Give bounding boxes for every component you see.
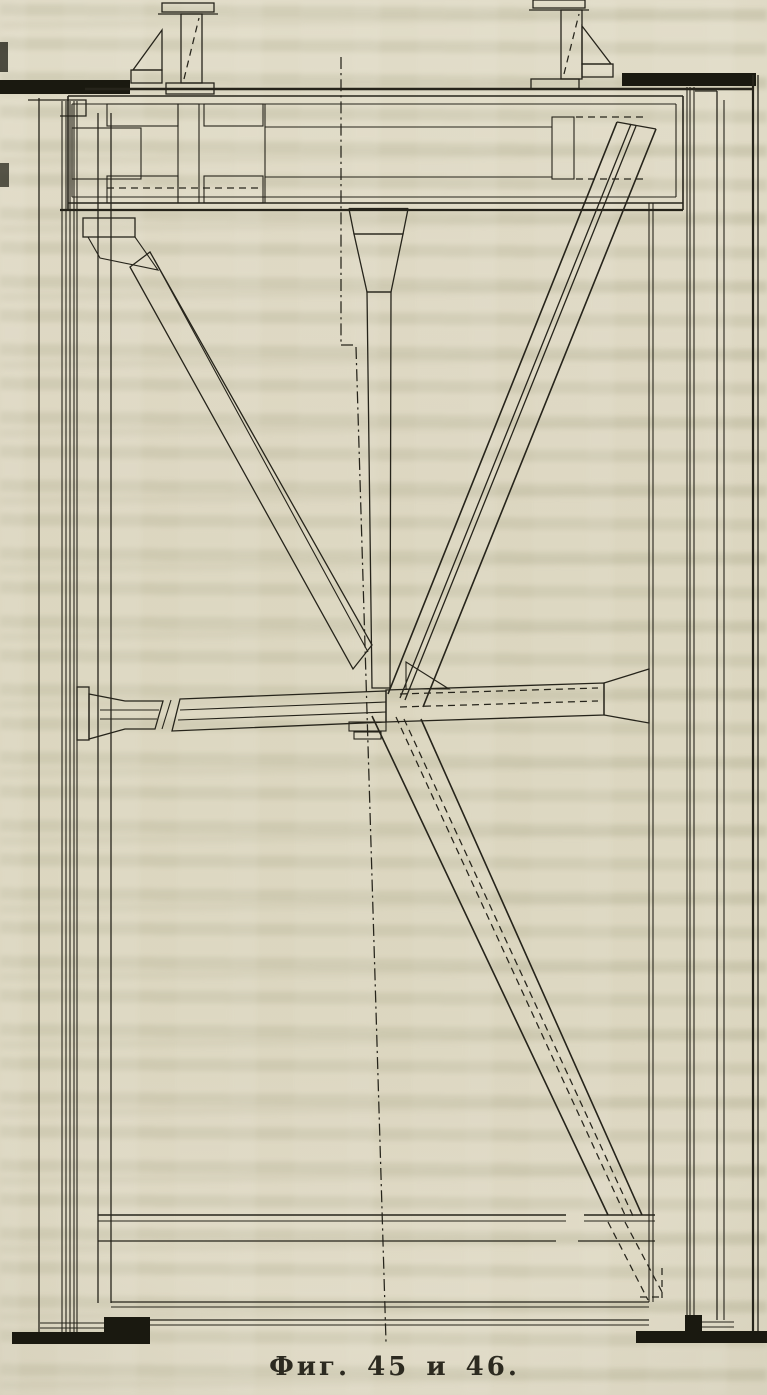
- tie-wall-bracket: [77, 687, 89, 740]
- top-i-beam-left: [131, 3, 218, 94]
- right-column: [649, 75, 758, 1332]
- figure-caption: Фиг. 45 и 46.: [0, 1352, 767, 1382]
- top-i-beam-right: [529, 0, 613, 89]
- centerlines: [341, 57, 386, 1342]
- hidden-continuation: [625, 1222, 662, 1292]
- crosshatched-block: [72, 128, 141, 179]
- central-hanger-rod: [349, 209, 408, 688]
- hatched-block: [204, 176, 263, 203]
- lower-centerline: [356, 347, 386, 1342]
- i-beam-bottom-flange: [531, 79, 579, 89]
- strut-bar-laced: [130, 252, 372, 669]
- lower-diagonal-member: [372, 716, 664, 1300]
- i-beam-lacing-hidden-line: [184, 18, 199, 79]
- i-beam-web: [181, 14, 202, 83]
- tie-mid-segment: [172, 691, 386, 731]
- rod-head: [349, 209, 408, 234]
- tie-hidden-line: [400, 701, 598, 707]
- scanned-page: Фиг. 45 и 46.: [0, 0, 767, 1395]
- strut-head-block: [83, 218, 135, 237]
- rod-shaft: [367, 292, 391, 688]
- top-right-bearing-plate: [622, 73, 756, 86]
- right-base-plate: [636, 1331, 767, 1343]
- engineering-cross-section-drawing: [0, 0, 767, 1395]
- tie-break-mark: [162, 700, 171, 729]
- i-beam-top-flange: [162, 3, 214, 12]
- left-base-plate: [12, 1332, 150, 1344]
- junction-gusset: [406, 662, 449, 689]
- hidden-continuation: [608, 1222, 648, 1300]
- i-beam-lacing-hidden-line: [564, 14, 579, 74]
- top-left-bearing-plate: [0, 80, 130, 94]
- i-beam-top-flange: [533, 0, 585, 8]
- rod-neck: [354, 234, 403, 292]
- left-base-block: [104, 1317, 150, 1333]
- right-base-block: [685, 1315, 702, 1332]
- left-column: [39, 98, 111, 1333]
- scan-smudge: [0, 163, 9, 187]
- beam-packing-blocks: [72, 104, 265, 203]
- tie-left-flared-end: [89, 694, 163, 739]
- gusset-triangle: [582, 26, 611, 64]
- bottom-chords: [98, 1215, 655, 1325]
- scan-smudge: [0, 42, 8, 72]
- tie-right-flared-end: [604, 669, 649, 723]
- hatched-stiffener: [552, 117, 574, 179]
- hatched-block: [107, 176, 178, 203]
- middle-tie: [77, 669, 649, 740]
- gusset-triangle: [133, 30, 162, 70]
- hatched-block: [204, 104, 263, 126]
- left-diagonal-strut: [83, 218, 372, 669]
- hatched-block: [107, 104, 178, 126]
